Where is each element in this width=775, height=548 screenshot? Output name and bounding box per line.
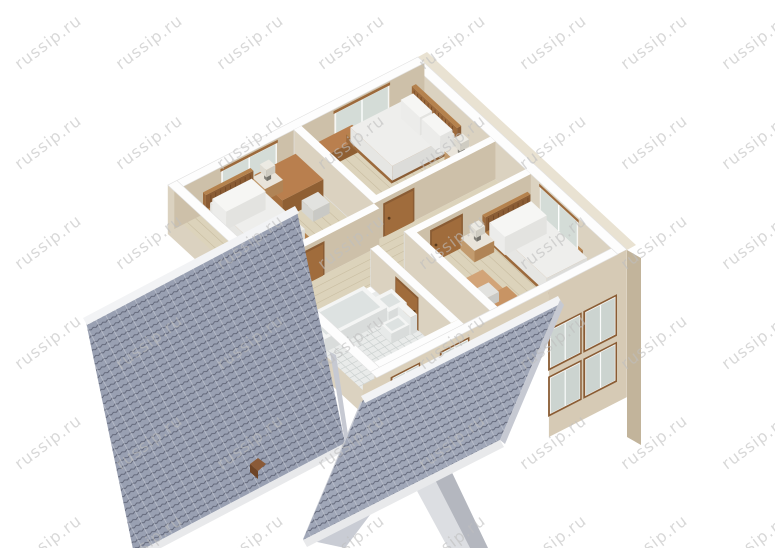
floorplan-3d-render: russip.rurussip.rurussip.rurussip.ruruss… xyxy=(0,0,775,548)
scene-svg xyxy=(0,0,775,548)
